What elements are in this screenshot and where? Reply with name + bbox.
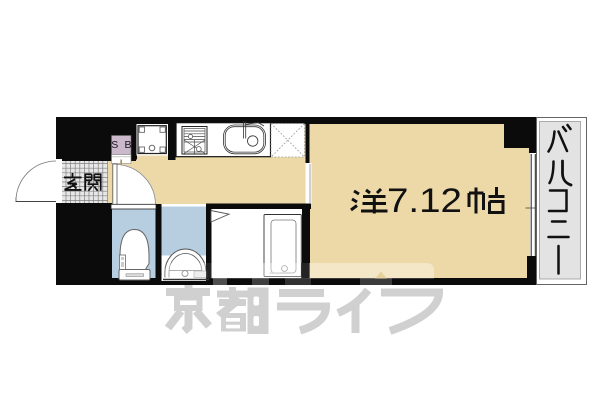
svg-text:7.12: 7.12: [387, 182, 462, 220]
svg-text:SB: SB: [111, 139, 137, 151]
